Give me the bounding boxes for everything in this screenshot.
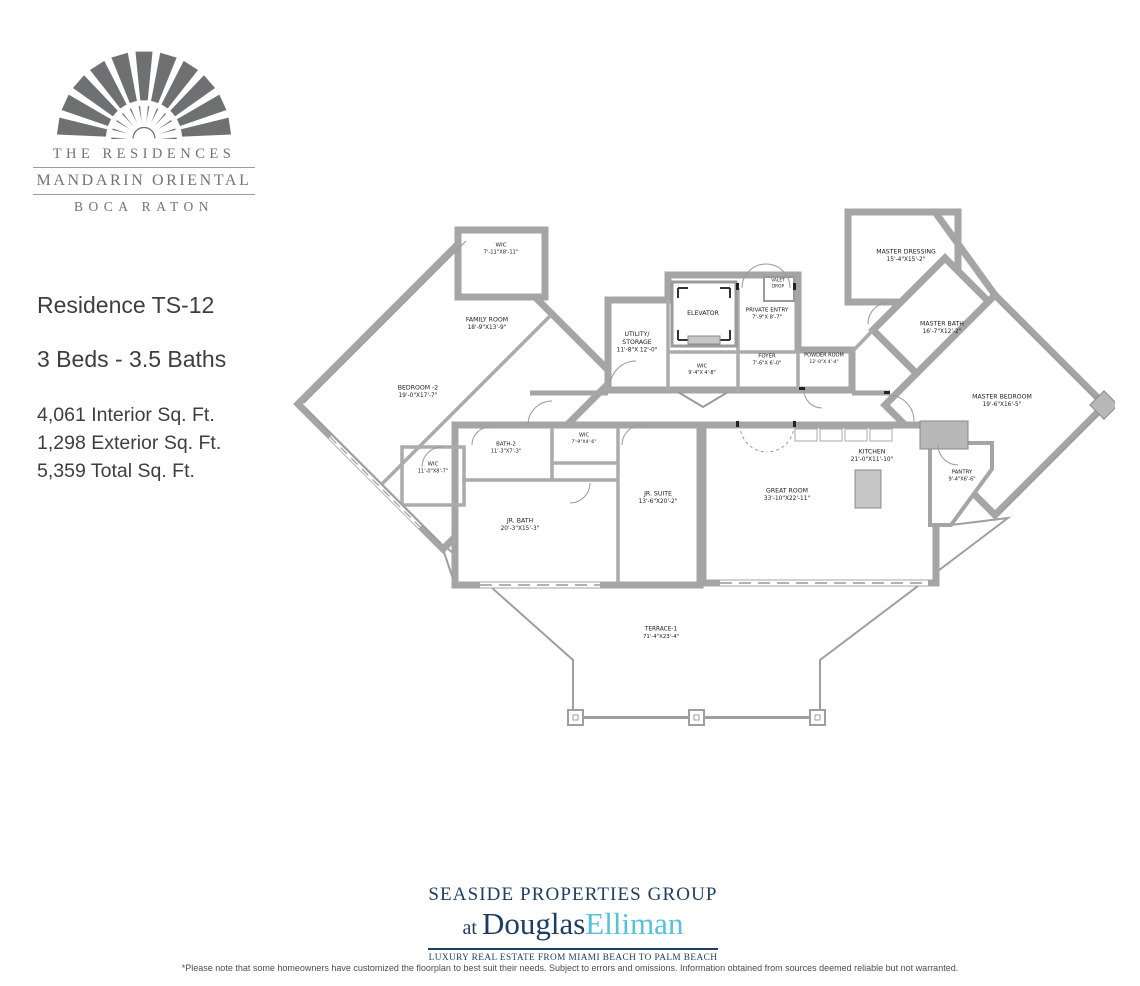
residence-title: Residence TS-12: [37, 292, 226, 319]
interior-sqft: 4,061 Interior Sq. Ft.: [37, 401, 226, 429]
kitchen-counter: [795, 429, 817, 441]
room-label-pantry: PANTRY9'-4"X6'-6": [948, 470, 975, 483]
brand-elliman: Elliman: [585, 906, 683, 941]
disclaimer-text: *Please note that some homeowners have c…: [0, 963, 1140, 973]
at-label: at: [463, 917, 482, 939]
room-label-terrace: TERRACE-171'-4"X23'-4": [643, 627, 679, 640]
residence-info: Residence TS-12 3 Beds - 3.5 Baths 4,061…: [37, 292, 226, 485]
logo-line-brand: MANDARIN ORIENTAL: [33, 172, 255, 190]
brand-rule: [428, 948, 718, 950]
kitchen-island: [855, 470, 881, 508]
wall-chase: [920, 421, 968, 449]
floorplan-svg: WIC7'-11"X8'-11"FAMILY ROOM18'-9"X13'-9"…: [290, 205, 1115, 765]
seaside-properties-group: SEASIDE PROPERTIES GROUP: [428, 884, 718, 906]
floorplan: WIC7'-11"X8'-11"FAMILY ROOM18'-9"X13'-9"…: [290, 205, 1115, 765]
logo-line-residences: THE RESIDENCES: [33, 146, 255, 163]
logo-line-location: BOCA RATON: [33, 199, 255, 215]
terrace-posts: [568, 710, 825, 725]
elevator-door: [688, 336, 720, 344]
kitchen-counter: [845, 429, 867, 441]
douglas-elliman-wordmark: at DouglasElliman: [428, 907, 718, 947]
fan-wedges: [57, 52, 231, 139]
beds-baths: 3 Beds - 3.5 Baths: [37, 346, 226, 373]
fan-base-arc: [133, 127, 155, 138]
kitchen-counter: [820, 429, 842, 441]
room-label-valet_drop: VALETDROP: [771, 278, 785, 290]
total-sqft: 5,359 Total Sq. Ft.: [37, 457, 226, 485]
entry-bay: [678, 392, 728, 407]
logo-divider: [33, 194, 255, 195]
page: THE RESIDENCES MANDARIN ORIENTAL BOCA RA…: [0, 0, 1140, 986]
exterior-sqft: 1,298 Exterior Sq. Ft.: [37, 429, 226, 457]
brand-douglas: Douglas: [482, 906, 585, 941]
mandarin-oriental-logo: THE RESIDENCES MANDARIN ORIENTAL BOCA RA…: [33, 24, 255, 215]
fan-logo-icon: [44, 24, 244, 142]
kitchen-counter: [870, 429, 892, 441]
logo-divider: [33, 167, 255, 168]
seaside-douglas-elliman-logo: SEASIDE PROPERTIES GROUP at DouglasEllim…: [428, 884, 718, 963]
brand-tagline: LUXURY REAL ESTATE FROM MIAMI BEACH TO P…: [428, 953, 718, 963]
room-label-elevator: ELEVATOR: [687, 310, 720, 317]
